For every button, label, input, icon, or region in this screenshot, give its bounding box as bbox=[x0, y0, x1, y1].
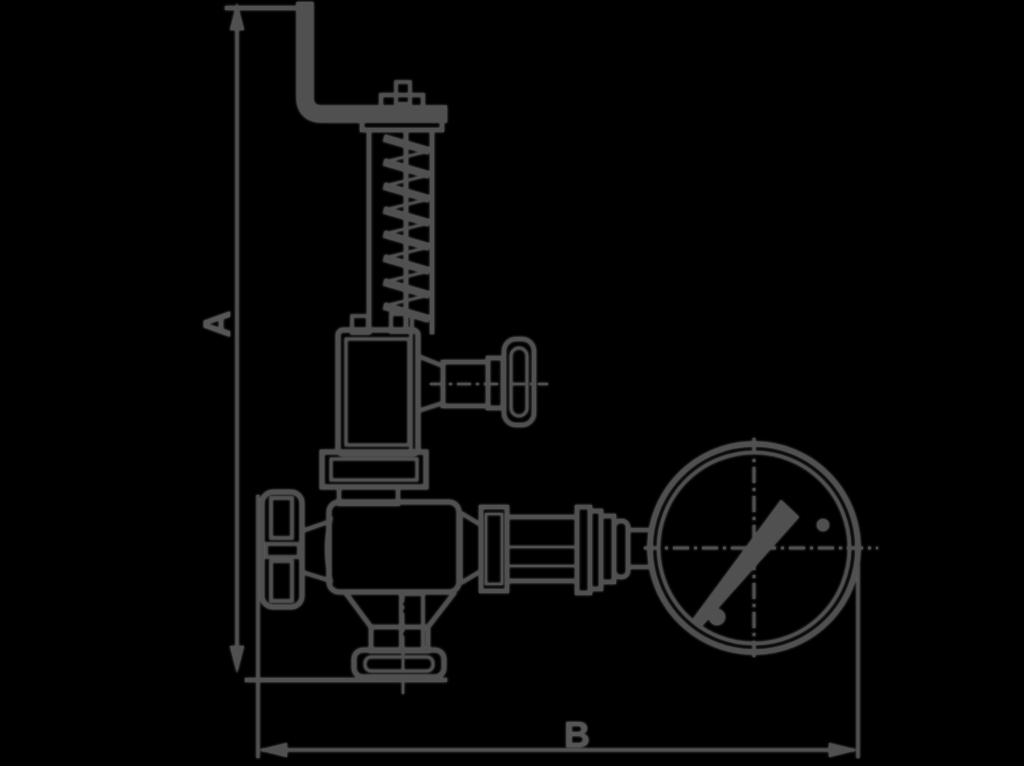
pressure-gauge bbox=[644, 438, 878, 658]
dim-a-arrow-down-icon bbox=[230, 646, 244, 673]
bonnet-inner bbox=[346, 339, 409, 445]
handwheel bbox=[262, 492, 331, 607]
dim-b-label: B bbox=[564, 714, 590, 755]
outlet-flange-outer bbox=[354, 650, 444, 677]
technical-drawing: A B bbox=[0, 0, 1024, 766]
gauge-screw-dot-right bbox=[817, 519, 829, 531]
plug-cap-inner bbox=[511, 348, 527, 416]
spindle-stub bbox=[396, 82, 410, 104]
gauge-socket bbox=[614, 521, 628, 577]
handwheel-hub bbox=[266, 544, 299, 557]
side-plug bbox=[418, 339, 548, 425]
gauge-needle bbox=[693, 500, 799, 627]
drawing-canvas: A B bbox=[0, 0, 1024, 766]
lever-arm bbox=[305, 2, 447, 114]
flange-inner bbox=[331, 459, 417, 480]
bonnet-outer bbox=[338, 330, 418, 454]
valve-body bbox=[329, 502, 459, 696]
handwheel-rim bbox=[262, 492, 302, 607]
dim-a-label: A bbox=[197, 310, 239, 337]
union-flange bbox=[322, 452, 426, 504]
coil-spring bbox=[384, 138, 429, 319]
gauge-piping bbox=[461, 507, 652, 593]
pipe-nipple bbox=[507, 517, 577, 581]
dim-b-arrow-right-icon bbox=[829, 743, 857, 757]
handwheel-spoke-bottom bbox=[271, 561, 292, 601]
union-nut-1 bbox=[481, 507, 507, 591]
body-block bbox=[329, 502, 459, 592]
test-lever bbox=[305, 2, 447, 114]
gauge-screw-dot-left bbox=[709, 609, 725, 625]
outlet-bore bbox=[401, 594, 423, 651]
flange-outer bbox=[322, 452, 426, 487]
plug-cap-outer bbox=[504, 339, 534, 425]
bonnet bbox=[338, 330, 418, 454]
outlet-flange-inner bbox=[365, 657, 433, 671]
handwheel-spoke-top bbox=[271, 498, 292, 538]
dim-b-arrow-left-icon bbox=[259, 743, 287, 757]
